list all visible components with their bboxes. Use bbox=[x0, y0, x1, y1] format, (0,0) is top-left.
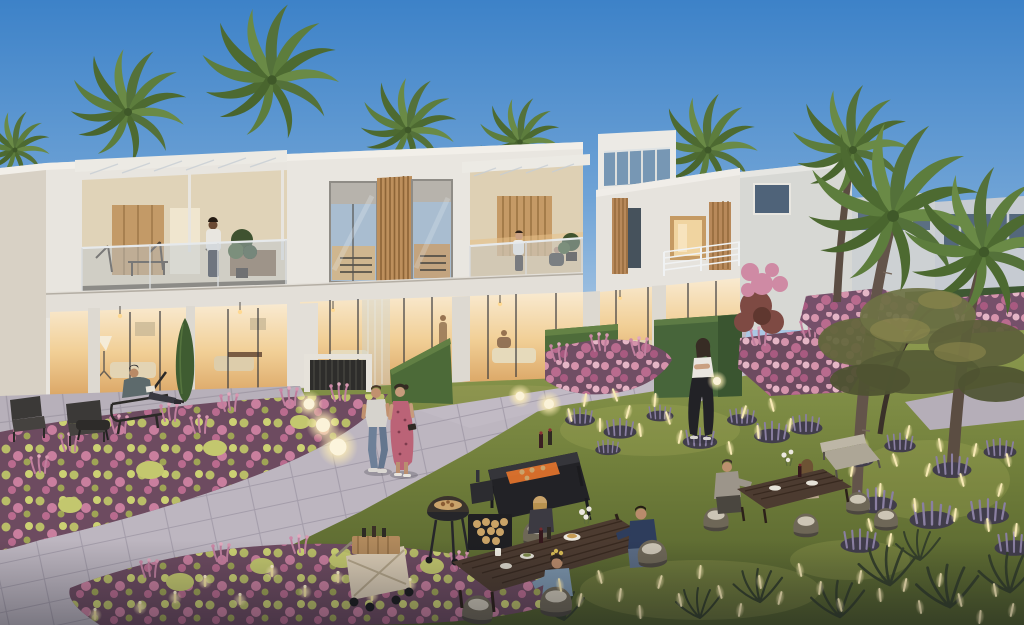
townhouse-mid bbox=[287, 142, 590, 308]
architectural-render-image: Dusk rendering of a modern townhouse com… bbox=[0, 0, 1024, 625]
dusk-vignette bbox=[0, 540, 1024, 625]
scene-canvas: Dusk rendering of a modern townhouse com… bbox=[0, 0, 1024, 625]
